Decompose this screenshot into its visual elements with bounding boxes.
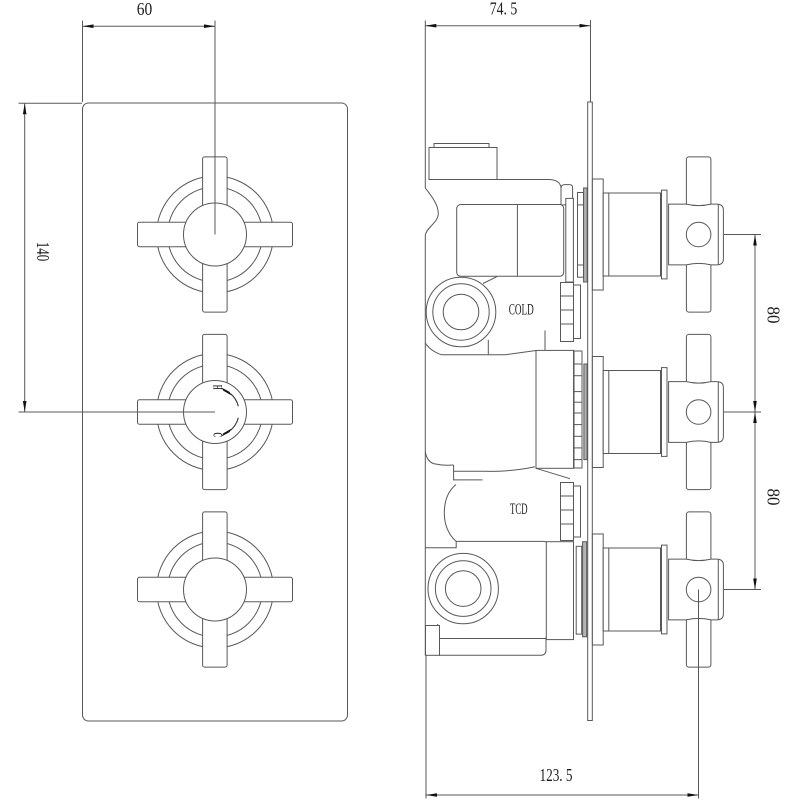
svg-text:123. 5: 123. 5 [540, 765, 573, 785]
svg-text:C: C [210, 432, 224, 437]
svg-text:80: 80 [764, 307, 784, 324]
svg-text:140: 140 [33, 242, 53, 262]
svg-text:H: H [211, 385, 225, 390]
svg-text:80: 80 [764, 489, 784, 506]
svg-text:TCD: TCD [510, 501, 528, 518]
svg-text:COLD: COLD [509, 302, 534, 319]
svg-text:60: 60 [137, 0, 153, 19]
svg-text:74. 5: 74. 5 [490, 0, 518, 19]
